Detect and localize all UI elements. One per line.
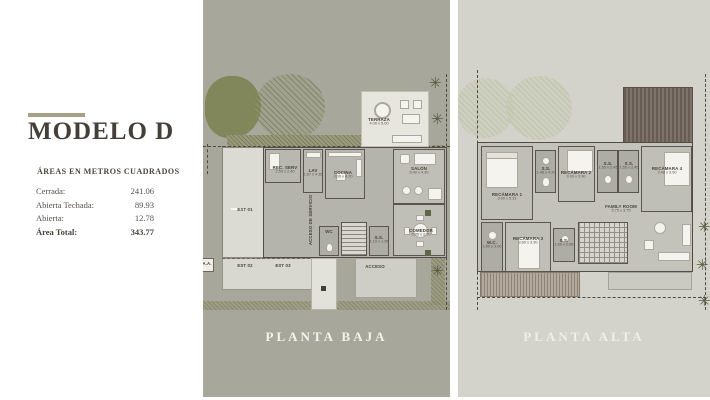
room-label-ss: S.S. 1.10 x 1.95 — [352, 235, 407, 244]
toilet — [326, 243, 333, 252]
area-label: Abierta Techada: — [36, 200, 94, 210]
sink — [488, 231, 497, 240]
armchair — [402, 186, 411, 195]
label-aa: A.A. — [203, 261, 235, 266]
page-title: MODELO D — [28, 118, 174, 146]
property-line — [477, 297, 706, 298]
palm-tree-icon: ✳ — [696, 258, 709, 273]
roof-pergola — [623, 87, 693, 143]
wood-deck — [480, 272, 580, 297]
tree-canopy-faint — [506, 76, 572, 140]
laundry-counter — [306, 152, 321, 158]
table-row: Abierta Techada: 89.93 — [36, 200, 154, 210]
room-label-recamara1: RECÁMARA 1 3.90 x 5.31 — [480, 192, 535, 201]
table-row: Cerrada: 241.06 — [36, 186, 154, 196]
palm-tree-icon: ✳ — [698, 220, 710, 235]
areas-table: Cerrada: 241.06 Abierta Techada: 89.93 A… — [36, 186, 154, 240]
entry-marker — [321, 286, 326, 291]
palm-tree-icon: ✳ — [698, 294, 710, 309]
table-row: Abierta: 12.78 — [36, 213, 154, 223]
label-acceso: ACCESO — [348, 264, 403, 269]
planter — [425, 250, 431, 256]
property-line — [705, 74, 706, 310]
room-label-family: FAMILY ROOM 5.75 x 3.75 — [594, 204, 649, 213]
room-label-recamara2: RECÁMARA 2 3.09 x 3.90 — [549, 170, 604, 179]
sofa — [658, 252, 690, 261]
accent-bar — [28, 113, 85, 117]
tree-canopy-hatched — [255, 74, 325, 140]
room-label-cocina: COCINA 3.00 x 4.20 — [316, 170, 371, 179]
brochure-page: MODELO D ÁREAS EN METROS CUADRADOS Cerra… — [0, 0, 710, 400]
table-row-total: Área Total: 343.77 — [36, 227, 154, 237]
pillows — [486, 152, 518, 159]
room-label-terraza: TERRAZA 4.00 x 5.00 — [352, 117, 407, 126]
dimension-tick — [207, 144, 208, 174]
room-recamara4 — [641, 146, 692, 212]
area-value: 343.77 — [131, 227, 154, 237]
area-label: Área Total: — [36, 227, 77, 237]
area-value: 241.06 — [131, 186, 154, 196]
caption-planta-baja: PLANTA BAJA — [203, 329, 450, 345]
tree-canopy — [205, 76, 261, 138]
stairwell — [578, 222, 628, 264]
palm-tree-icon: ✳ — [429, 76, 442, 91]
tv-cabinet — [682, 224, 691, 246]
planta-baja-panel: TERRAZA 4.00 x 5.00 ✳ ✳ ✳ ✳ ✳ ✳ EST 01 E… — [203, 0, 450, 397]
room-recamara3 — [505, 222, 551, 272]
balcony — [608, 272, 692, 290]
armchair — [654, 222, 666, 234]
sofa — [392, 135, 422, 143]
armchair — [400, 100, 409, 109]
caption-planta-alta: PLANTA ALTA — [458, 329, 710, 345]
sink — [625, 175, 633, 184]
label-acceso-servicio: ACCESO DE SERVICIO — [308, 193, 313, 248]
label-est03: EST 03 — [256, 263, 311, 268]
armchair — [644, 240, 654, 250]
planter — [425, 210, 431, 216]
sink — [604, 175, 612, 184]
entry-walk — [311, 258, 337, 310]
planta-alta-panel: RECÁMARA 1 3.90 x 5.31 S.S. 1.48 x 4.20 … — [458, 0, 710, 397]
armchair — [414, 186, 423, 195]
room-ss3 — [618, 150, 639, 193]
room-ss2 — [597, 150, 618, 193]
room-label-salon: SALON 5.40 x 4.30 — [392, 166, 447, 175]
garage — [222, 147, 265, 258]
area-label: Cerrada: — [36, 186, 65, 196]
area-label: Abierta: — [36, 213, 64, 223]
room-salon — [393, 149, 445, 204]
area-value: 89.93 — [135, 200, 154, 210]
chair — [416, 241, 424, 247]
areas-subtitle: ÁREAS EN METROS CUADRADOS — [37, 167, 180, 176]
armchair — [400, 154, 410, 164]
tv-cabinet — [428, 188, 442, 200]
palm-tree-icon: ✳ — [431, 112, 444, 127]
driveway-line — [222, 258, 315, 259]
chair — [416, 215, 424, 221]
room-recamara1 — [481, 146, 533, 220]
armchair — [413, 100, 422, 109]
room-label-recamara4: RECÁMARA 4 3.48 x 3.90 — [640, 166, 695, 175]
palm-tree-icon: ✳ — [431, 264, 444, 279]
sofa — [414, 153, 436, 165]
sink — [542, 157, 550, 165]
kitchen-counter — [328, 152, 362, 157]
area-value: 12.78 — [135, 213, 154, 223]
